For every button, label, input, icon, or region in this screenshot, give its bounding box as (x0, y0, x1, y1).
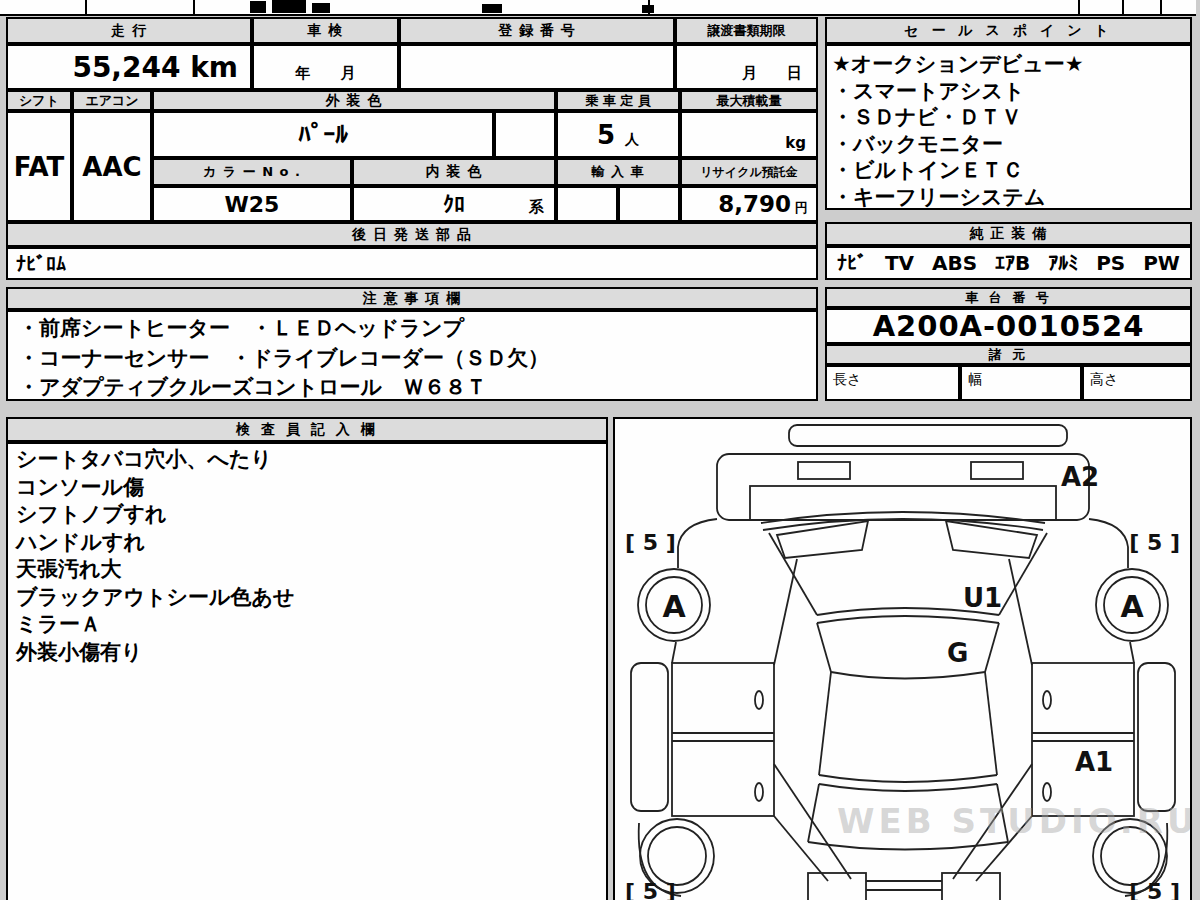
roof-side-right (985, 672, 997, 775)
vehicle-info-table: 走 行 車 検 登 録 番 号 譲渡書類期限 55,244 km 年 月 月 日… (6, 17, 818, 280)
hatch-side-left (808, 784, 819, 842)
wheel-label-front-left: A (662, 589, 686, 624)
auction-sheet-page: 走 行 車 検 登 録 番 号 譲渡書類期限 55,244 km 年 月 月 日… (0, 0, 1200, 900)
interior-color-text: ｸﾛ (443, 192, 465, 217)
equipment-item: ｱﾙﾐ (1048, 251, 1078, 275)
rear-bumper-left (808, 873, 866, 900)
headlight-right (971, 462, 1023, 479)
right-sill-panel (1138, 663, 1175, 811)
inspector-note-line: ミラーＡ (16, 611, 101, 639)
tread-depth-bottom-left: [ 5 ] (625, 879, 676, 900)
rear-bumper-right (942, 873, 1000, 900)
cropped-text-fragment (312, 3, 330, 13)
cowl-arc (761, 512, 1045, 523)
inspection-value: 年 月 (254, 46, 397, 88)
sales-point-item: ・ビルトインＥＴＣ (832, 157, 1023, 184)
sales-point-item: ★オークションデビュー★ (832, 51, 1084, 78)
spec-length-cell: 長さ (827, 367, 958, 399)
interior-color-header: 内 装 色 (354, 160, 554, 184)
rear-right-wheel-inner (1101, 827, 1159, 885)
roof-front-side-left (817, 623, 831, 672)
roof-front-side-right (985, 623, 999, 672)
inspector-note-line: ブラックアウトシール色あせ (16, 584, 294, 612)
windshield-side-right (999, 533, 1047, 615)
fold-line (774, 559, 797, 665)
inspector-note-line: 天張汚れ大 (16, 556, 122, 584)
inspector-note-line: 外装小傷有り (16, 639, 143, 667)
fender-sill-join (1130, 642, 1134, 663)
equipment-item: PS (1096, 251, 1125, 275)
aircon-header: エアコン (74, 92, 150, 109)
capacity-unit: 人 (625, 121, 639, 149)
right-door-handle (1043, 783, 1051, 801)
fold-line (1009, 559, 1032, 665)
recycle-amount: 8,790 (718, 191, 791, 217)
sales-point-item: ・ＳＤナビ・ＤＴＶ (832, 104, 1022, 131)
cropped-text-fragment (642, 5, 654, 13)
import-car-cell-1 (558, 188, 616, 220)
left-door-handle (755, 691, 763, 709)
left-door-panel (672, 663, 774, 816)
divider (193, 0, 195, 14)
front-fender-right (1089, 519, 1128, 568)
exterior-color-extra-cell (496, 113, 554, 156)
sales-point-item: ・キーフリーシステム (832, 184, 1045, 209)
capacity-value: 5 人 (558, 113, 678, 156)
roof-front-arc (831, 672, 985, 679)
fender-sill-join (672, 642, 676, 663)
cropped-text-fragment (482, 4, 502, 13)
caution-note-line: ・アダプティブクルーズコントロール Ｗ６８Ｔ (18, 373, 487, 399)
divider (1160, 0, 1162, 14)
caution-notes-block: 注 意 事 項 欄 ・前席シートヒーター ・ＬＥＤヘッドランプ ・コーナーセンサ… (6, 287, 818, 401)
inspector-notes-list: シートタバコ穴小、へたり コンソール傷 シフトノブすれ ハンドルすれ 天張汚れ大… (8, 444, 606, 900)
spec-width-cell: 幅 (962, 367, 1080, 399)
transfer-deadline-value: 月 日 (677, 46, 816, 88)
headlight-left (798, 462, 850, 479)
inspector-note-line: コンソール傷 (16, 474, 144, 502)
aircon-value: AAC (74, 113, 150, 220)
capacity-number: 5 (597, 120, 615, 150)
equipment-item: TV (885, 251, 914, 275)
later-parts-value: ﾅﾋﾞﾛﾑ (8, 249, 816, 278)
registration-value-cell (401, 46, 673, 88)
color-no-value: W25 (154, 188, 350, 220)
fold-line (976, 816, 1032, 881)
caution-notes-list: ・前席シートヒーター ・ＬＥＤヘッドランプ ・コーナーセンサー ・ドライブレコー… (8, 312, 816, 399)
genuine-equipment-title: 純 正 装 備 (827, 224, 1190, 244)
registration-header: 登 録 番 号 (401, 19, 673, 42)
rear-window-arc (819, 775, 997, 782)
equipment-item: ｴｱB (995, 251, 1030, 275)
recycle-deposit-value: 8,790 円 (682, 188, 816, 220)
front-panel-frame (750, 486, 1056, 520)
recycle-deposit-header: リサイクル預託金 (682, 160, 816, 184)
max-load-header: 最大積載量 (682, 92, 816, 109)
transfer-deadline-header: 譲渡書類期限 (677, 19, 816, 42)
divider (1122, 0, 1124, 14)
cropped-top-row (0, 0, 1196, 16)
chassis-title: 車 台 番 号 (827, 289, 1190, 306)
tread-depth-top-left: [ 5 ] (625, 530, 676, 555)
divider (1078, 0, 1080, 14)
inspector-notes-title: 検 査 員 記 入 欄 (8, 419, 606, 440)
recycle-unit: 円 (795, 191, 808, 217)
genuine-equipment-block: 純 正 装 備 ﾅﾋﾞ TV ABS ｴｱB ｱﾙﾐ PS PW (825, 222, 1192, 280)
sales-points-list: ★オークションデビュー★ ・スマートアシスト ・ＳＤナビ・ＤＴＶ ・バックモニタ… (827, 46, 1190, 208)
sales-points-title: セ ー ル ス ポ イ ン ト (827, 19, 1190, 42)
sales-point-item: ・バックモニター (832, 131, 1003, 158)
right-door-panel (1032, 663, 1134, 816)
cropped-text-fragment (250, 1, 266, 13)
exterior-color-header: 外 装 色 (154, 92, 554, 109)
import-car-cell-2 (620, 188, 678, 220)
later-parts-header: 後 日 発 送 部 品 (8, 224, 816, 245)
shift-value: FAT (8, 113, 70, 220)
front-bumper-strip (789, 425, 1067, 446)
damage-label-a1: A1 (1075, 747, 1113, 777)
vehicle-topview-diagram: A2 U1 G A1 A A [ 5 ] [ 5 ] [ 5 ] [ 5 ] (615, 419, 1190, 900)
divider (85, 0, 87, 14)
damage-label-u1: U1 (963, 583, 1002, 613)
rear-window-arc (819, 784, 997, 791)
left-door-handle (755, 783, 763, 801)
front-fender-left (678, 519, 717, 568)
sales-points-block: セ ー ル ス ポ イ ン ト ★オークションデビュー★ ・スマートアシスト ・… (825, 17, 1192, 210)
specs-title: 諸 元 (827, 346, 1190, 363)
inspector-note-line: ハンドルすれ (16, 529, 145, 557)
tread-depth-top-right: [ 5 ] (1129, 530, 1180, 555)
caution-note-line: ・コーナーセンサー ・ドライブレコーダー（ＳＤ欠） (18, 344, 549, 374)
caution-note-line: ・前席シートヒーター ・ＬＥＤヘッドランプ (18, 314, 464, 344)
chassis-block: 車 台 番 号 A200A-0010524 諸 元 長さ 幅 高さ (825, 287, 1192, 401)
tread-depth-bottom-right: [ 5 ] (1129, 879, 1180, 900)
caution-notes-title: 注 意 事 項 欄 (8, 289, 816, 308)
right-door-handle (1043, 691, 1051, 709)
damage-label-a2: A2 (1061, 462, 1099, 492)
equipment-item: ABS (932, 251, 977, 275)
equipment-item: PW (1143, 251, 1180, 275)
import-car-header: 輸 入 車 (558, 160, 678, 184)
windshield-bottom-arc (817, 616, 999, 623)
capacity-header: 乗 車 定 員 (558, 92, 678, 109)
equipment-item: ﾅﾋﾞ (837, 251, 867, 275)
chassis-number: A200A-0010524 (827, 310, 1190, 342)
spec-height-cell: 高さ (1084, 367, 1190, 399)
vehicle-diagram-canvas: A2 U1 G A1 A A [ 5 ] [ 5 ] [ 5 ] [ 5 ] W… (615, 419, 1190, 900)
cropped-text-fragment (272, 0, 306, 13)
shift-header: シフト (8, 92, 70, 109)
interior-color-value: ｸﾛ 系 (354, 188, 554, 220)
wheel-label-front-right: A (1120, 589, 1144, 624)
max-load-value: kg (682, 113, 816, 156)
genuine-equipment-list: ﾅﾋﾞ TV ABS ｴｱB ｱﾙﾐ PS PW (827, 248, 1190, 278)
damage-label-g: G (947, 638, 968, 668)
roof-side-left (819, 672, 831, 775)
front-bumper (717, 454, 1089, 520)
exterior-color-value: ﾊﾟｰﾙ (154, 113, 492, 156)
inspector-note-line: シートタバコ穴小、へたり (16, 446, 272, 474)
mileage-header: 走 行 (8, 19, 250, 42)
sales-point-item: ・スマートアシスト (832, 78, 1024, 105)
fold-line (774, 816, 828, 881)
inspection-header: 車 検 (254, 19, 397, 42)
inspector-note-line: シフトノブすれ (16, 501, 166, 529)
color-no-header: カ ラ ー N o . (154, 160, 350, 184)
interior-color-suffix: 系 (529, 198, 544, 217)
rear-left-wheel-inner (648, 827, 706, 885)
mileage-value: 55,244 km (8, 46, 250, 88)
inspector-notes-block: 検 査 員 記 入 欄 シートタバコ穴小、へたり コンソール傷 シフトノブすれ … (6, 417, 608, 900)
vehicle-diagram-block: A2 U1 G A1 A A [ 5 ] [ 5 ] [ 5 ] [ 5 ] W… (613, 417, 1192, 900)
left-sill-panel (631, 663, 668, 811)
